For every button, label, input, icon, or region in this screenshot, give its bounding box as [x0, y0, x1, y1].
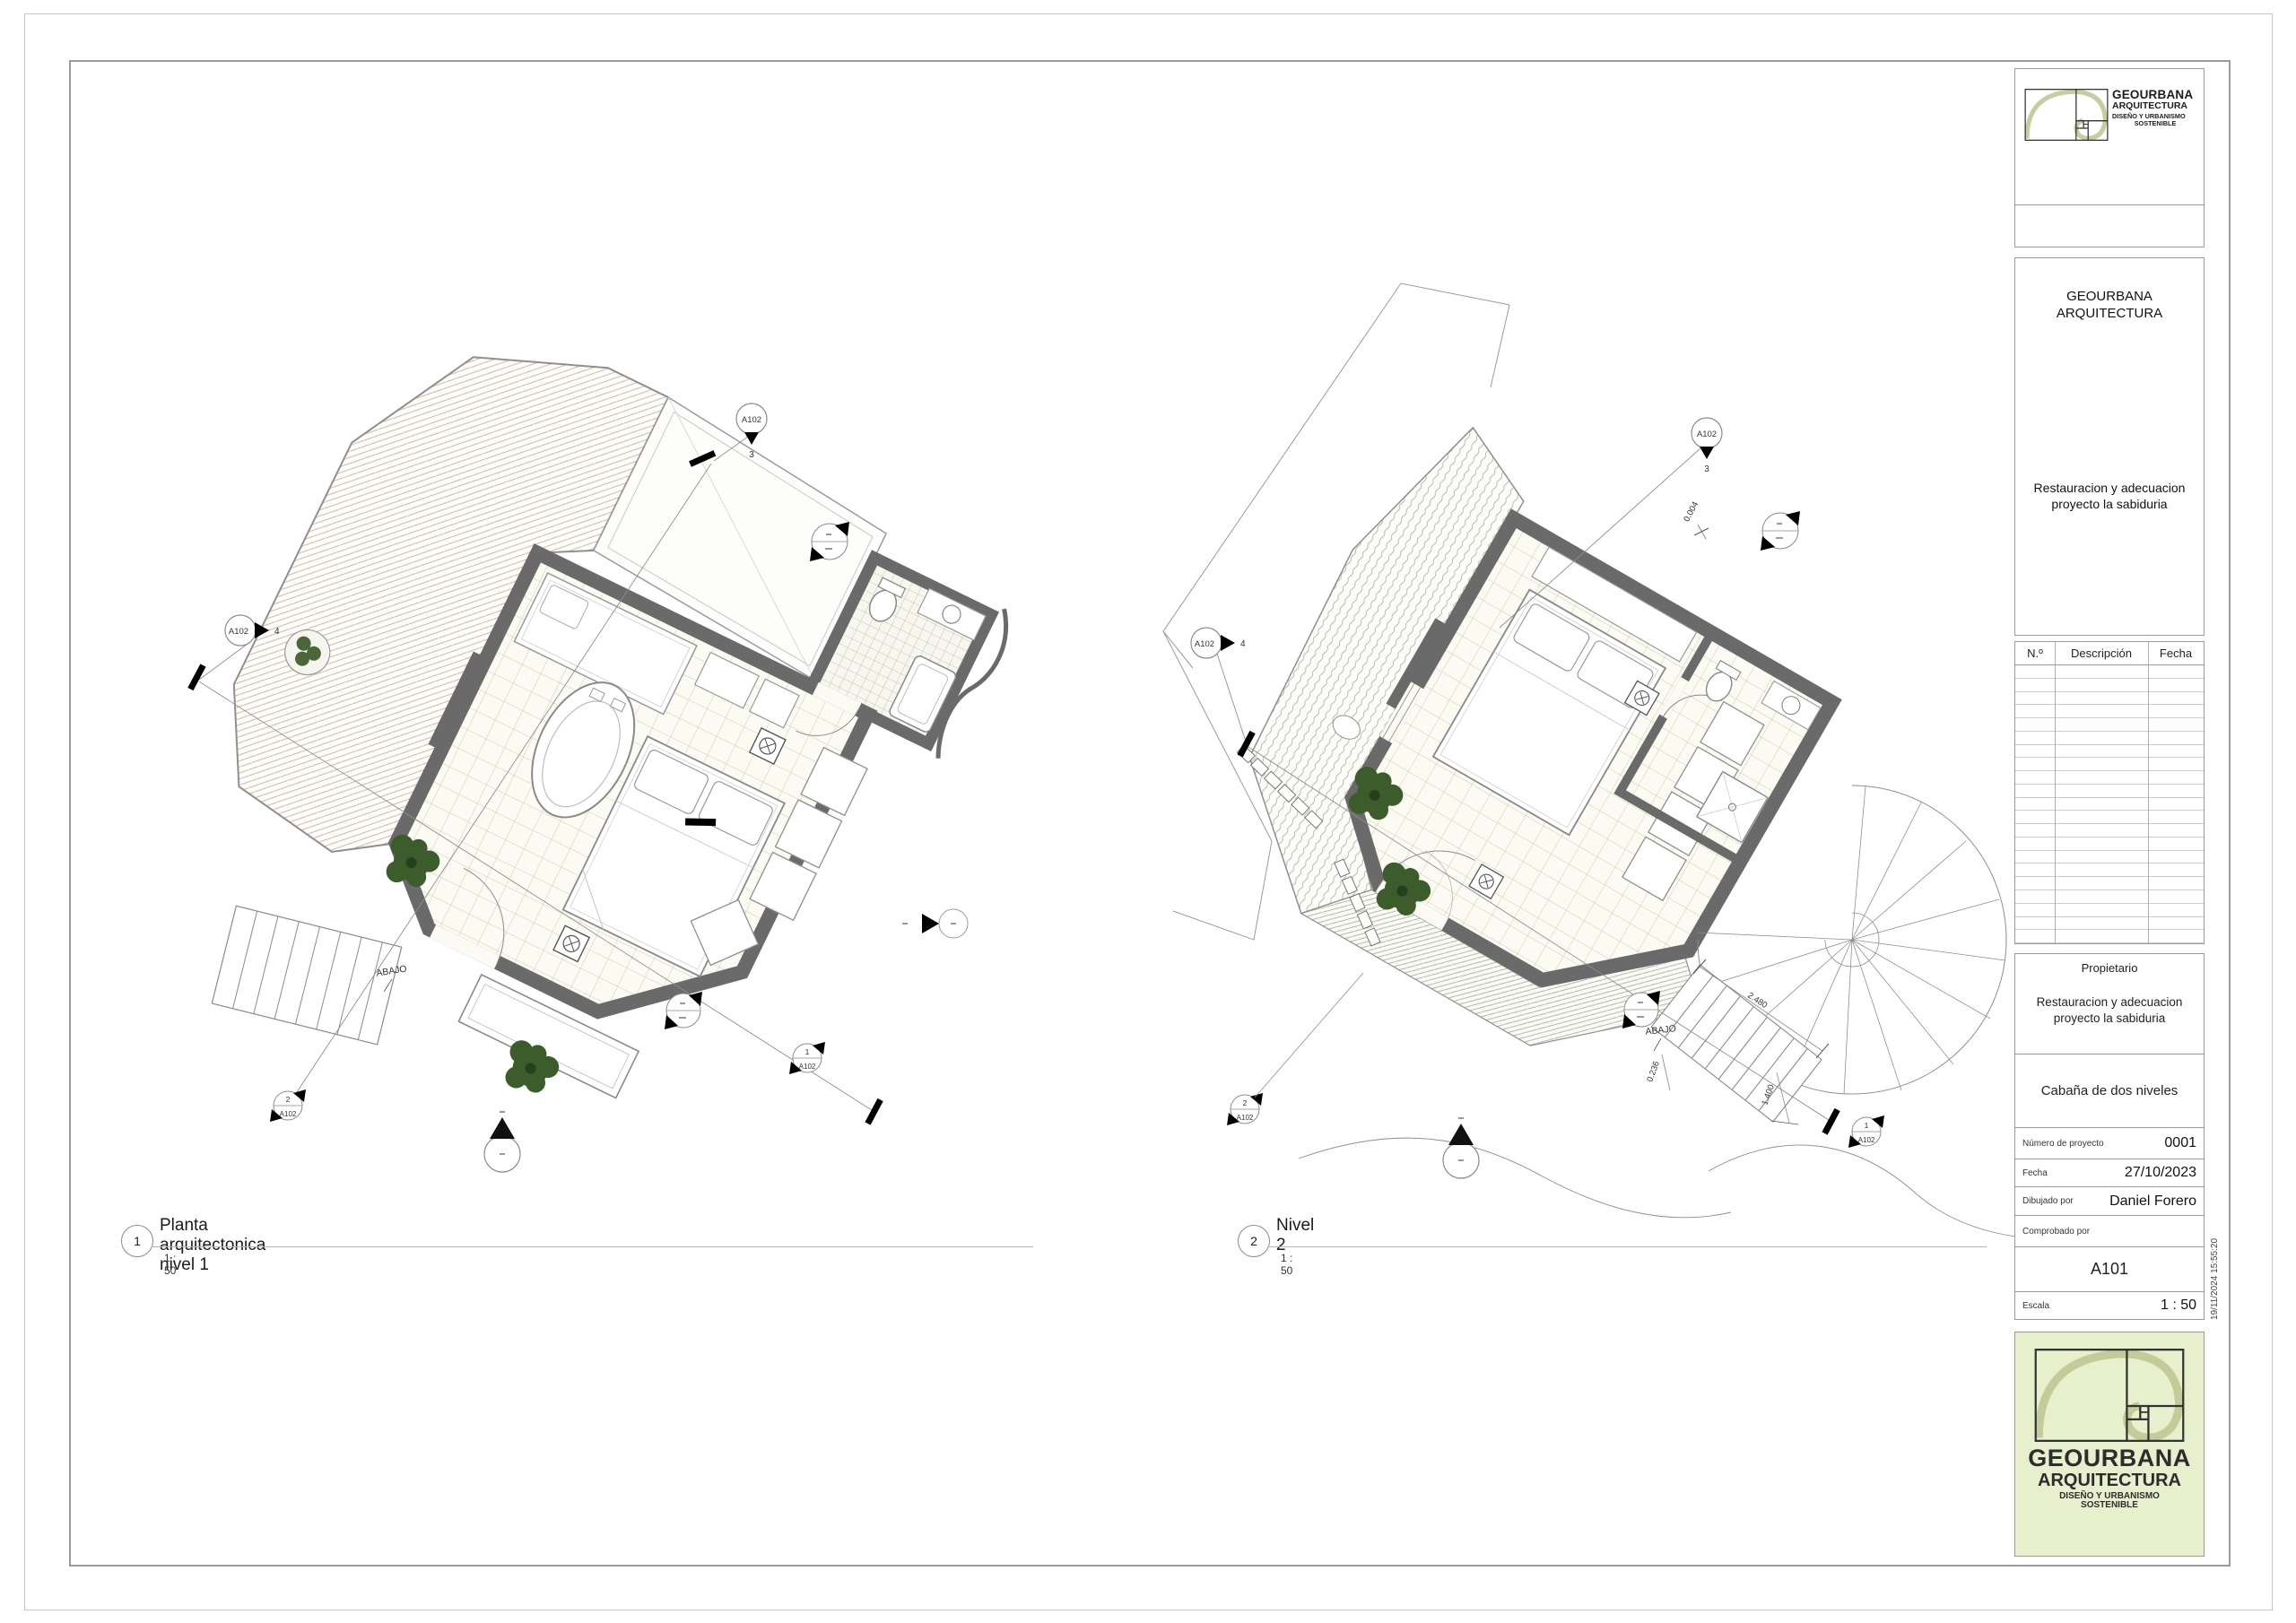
rev-header-num: N.º [2015, 647, 2055, 660]
project-number-label: Número de proyecto [2022, 1139, 2104, 1149]
svg-text:0.236: 0.236 [1645, 1060, 1661, 1083]
balloon-num: 3 [749, 450, 754, 460]
date-value: 27/10/2023 [2125, 1165, 2196, 1181]
sheet-number: A101 [2091, 1260, 2128, 1279]
checked-by-label: Comprobado por [2022, 1227, 2090, 1237]
revision-row [2015, 705, 2204, 718]
svg-text:A102: A102 [1697, 430, 1717, 439]
print-timestamp: 19/11/2024 15:55:20 [2210, 1238, 2220, 1320]
date-label: Fecha [2022, 1168, 2048, 1178]
svg-text:4: 4 [274, 627, 280, 637]
callout-balloon: 1 A102 [1848, 1115, 1884, 1148]
svg-text:A102: A102 [1858, 1136, 1875, 1144]
rev-header-date: Fecha [2148, 647, 2204, 660]
drawn-by-row: Dibujado por Daniel Forero [2015, 1187, 2204, 1216]
north-arrow-icon [484, 1112, 520, 1172]
revision-row [2015, 758, 2204, 771]
view1-scale: 1 : 50 [164, 1252, 176, 1277]
svg-text:A102: A102 [1237, 1114, 1254, 1122]
revision-row [2015, 798, 2204, 811]
revision-row [2015, 785, 2204, 798]
revision-row [2015, 665, 2204, 679]
owner-desc-line1: Restauracion y adecuacion [2015, 994, 2204, 1011]
revision-table: N.º Descripción Fecha [2014, 641, 2205, 944]
scale-value: 1 : 50 [2161, 1298, 2196, 1314]
scale-row: Escala 1 : 50 [2015, 1292, 2204, 1319]
company-line1: GEOURBANA [2015, 289, 2204, 306]
revision-row [2015, 771, 2204, 785]
balloon-sheet: A102 [742, 415, 761, 425]
company-logo-icon [2024, 89, 2109, 141]
view2-number-circle: 2 [1238, 1225, 1270, 1257]
logo-tag2: SOSTENIBLE [2112, 120, 2198, 127]
revision-row [2015, 904, 2204, 917]
view2-scale: 1 : 50 [1281, 1252, 1292, 1277]
svg-text:2: 2 [286, 1095, 291, 1104]
titleblock-logo-box: GEOURBANA ARQUITECTURA DISEÑO Y URBANISM… [2014, 68, 2205, 247]
revision-row [2015, 692, 2204, 706]
project-desc-line2: proyecto la sabiduria [2015, 496, 2204, 512]
view1-number-circle: 1 [121, 1225, 153, 1257]
svg-text:2: 2 [1243, 1098, 1248, 1107]
owner-row: Propietario Restauracion y adecuacion pr… [2015, 954, 2204, 1055]
svg-text:0.004: 0.004 [1682, 500, 1700, 524]
brand-logo-icon [2034, 1349, 2185, 1442]
revision-row [2015, 732, 2204, 745]
svg-text:1: 1 [1865, 1121, 1869, 1130]
svg-text:4: 4 [1240, 639, 1246, 649]
titleblock-info-box: Propietario Restauracion y adecuacion pr… [2014, 953, 2205, 1320]
brand-box: GEOURBANA ARQUITECTURA DISEÑO Y URBANISM… [2014, 1332, 2205, 1557]
svg-text:3: 3 [1704, 464, 1709, 474]
sheet-number-row: A101 [2015, 1247, 2204, 1292]
revision-row [2015, 718, 2204, 732]
brand-tag2: SOSTENIBLE [2015, 1501, 2204, 1510]
revision-row [2015, 877, 2204, 890]
project-name-row: Cabaña de dos niveles [2015, 1055, 2204, 1128]
rev-header-desc: Descripción [2055, 647, 2148, 660]
drawing-canvas: A102 3 A102 4 1 A102 [0, 0, 2296, 1623]
revision-row [2015, 930, 2204, 943]
drawn-by-value: Daniel Forero [2109, 1193, 2196, 1210]
revision-rows [2015, 665, 2204, 943]
svg-text:A102: A102 [799, 1063, 816, 1071]
brand-field: ARQUITECTURA [2015, 1471, 2204, 1489]
project-number-row: Número de proyecto 0001 [2015, 1128, 2204, 1159]
svg-text:A102: A102 [229, 627, 248, 637]
date-row: Fecha 27/10/2023 [2015, 1159, 2204, 1187]
titleblock-company-box: GEOURBANA ARQUITECTURA Restauracion y ad… [2014, 257, 2205, 636]
owner-desc-line2: proyecto la sabiduria [2015, 1011, 2204, 1027]
level-marker [1761, 511, 1800, 551]
plan1-stairs [212, 906, 401, 1045]
view2-underline [1268, 1246, 1987, 1247]
view1-underline [152, 1246, 1033, 1247]
project-desc-line1: Restauracion y adecuacion [2015, 480, 2204, 496]
revision-row [2015, 838, 2204, 851]
owner-title: Propietario [2015, 954, 2204, 975]
brand-name: GEOURBANA [2015, 1446, 2204, 1471]
svg-text:1: 1 [805, 1047, 810, 1056]
callout-balloon: 2 A102 [270, 1089, 306, 1122]
plan2-building [1182, 406, 1896, 1111]
project-name: Cabaña de dos niveles [2041, 1083, 2179, 1098]
view-marker [902, 909, 968, 938]
callout-balloon: 2 A102 [1227, 973, 1363, 1125]
revision-row [2015, 864, 2204, 877]
svg-text:A102: A102 [280, 1110, 297, 1118]
logo-field: ARQUITECTURA [2112, 101, 2198, 111]
company-line2: ARQUITECTURA [2015, 306, 2204, 323]
revision-row [2015, 917, 2204, 931]
revision-row [2015, 811, 2204, 824]
scale-label: Escala [2022, 1301, 2049, 1311]
revision-row [2015, 851, 2204, 864]
checked-by-row: Comprobado por [2015, 1216, 2204, 1247]
drawn-by-label: Dibujado por [2022, 1196, 2074, 1206]
north-arrow-icon [1443, 1118, 1479, 1178]
revision-row [2015, 890, 2204, 904]
project-number-value: 0001 [2164, 1135, 2196, 1151]
logo-name: GEOURBANA [2112, 89, 2198, 101]
revision-row [2015, 745, 2204, 759]
revision-row [2015, 679, 2204, 692]
view2-title: Nivel 2 [1276, 1216, 1314, 1255]
plan1-building [104, 282, 1038, 1247]
revision-row [2015, 824, 2204, 838]
callout-balloon: 1 A102 [789, 1042, 825, 1074]
svg-text:A102: A102 [1195, 639, 1214, 649]
